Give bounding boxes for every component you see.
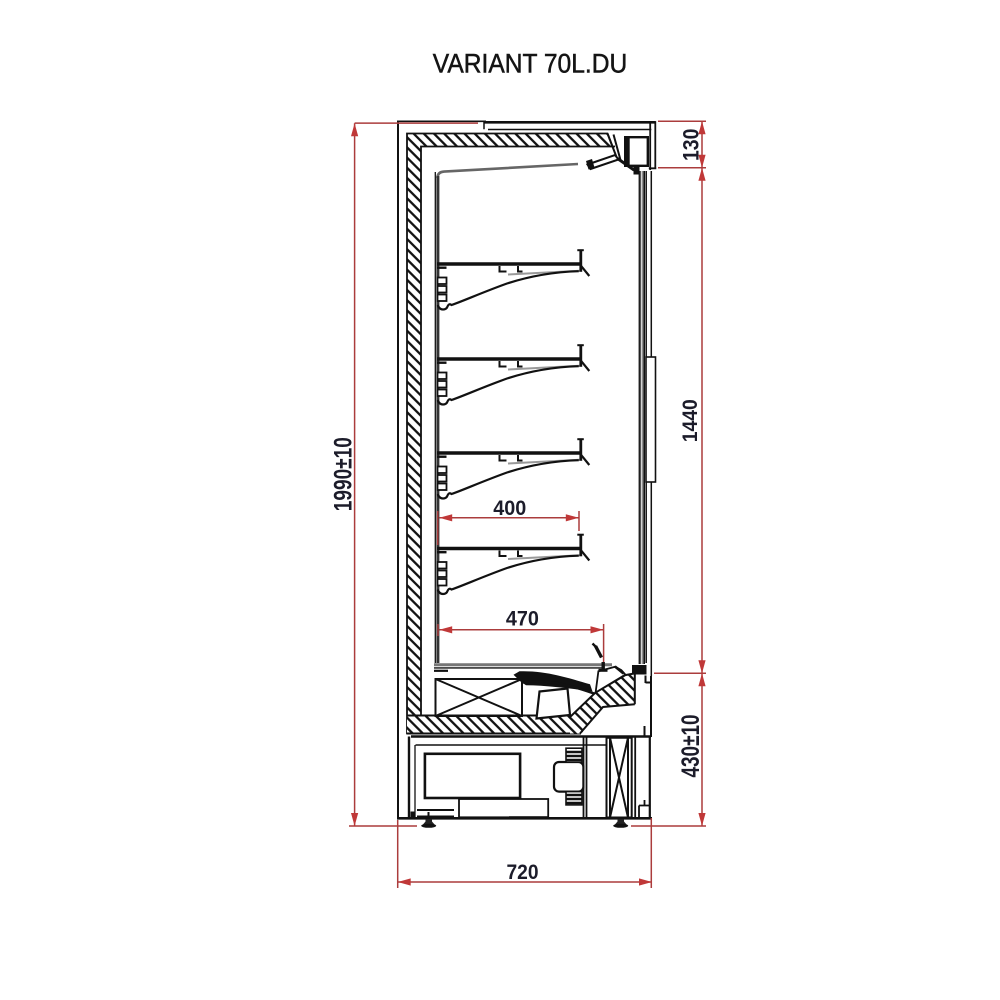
svg-text:VARIANT 70L.DU: VARIANT 70L.DU: [433, 49, 628, 79]
svg-text:720: 720: [507, 860, 539, 884]
svg-text:470: 470: [506, 607, 539, 631]
svg-text:1440: 1440: [679, 399, 702, 442]
svg-text:400: 400: [493, 496, 526, 520]
svg-text:430±10: 430±10: [677, 715, 705, 778]
svg-text:130: 130: [679, 129, 704, 162]
svg-text:1990±10: 1990±10: [330, 437, 358, 511]
